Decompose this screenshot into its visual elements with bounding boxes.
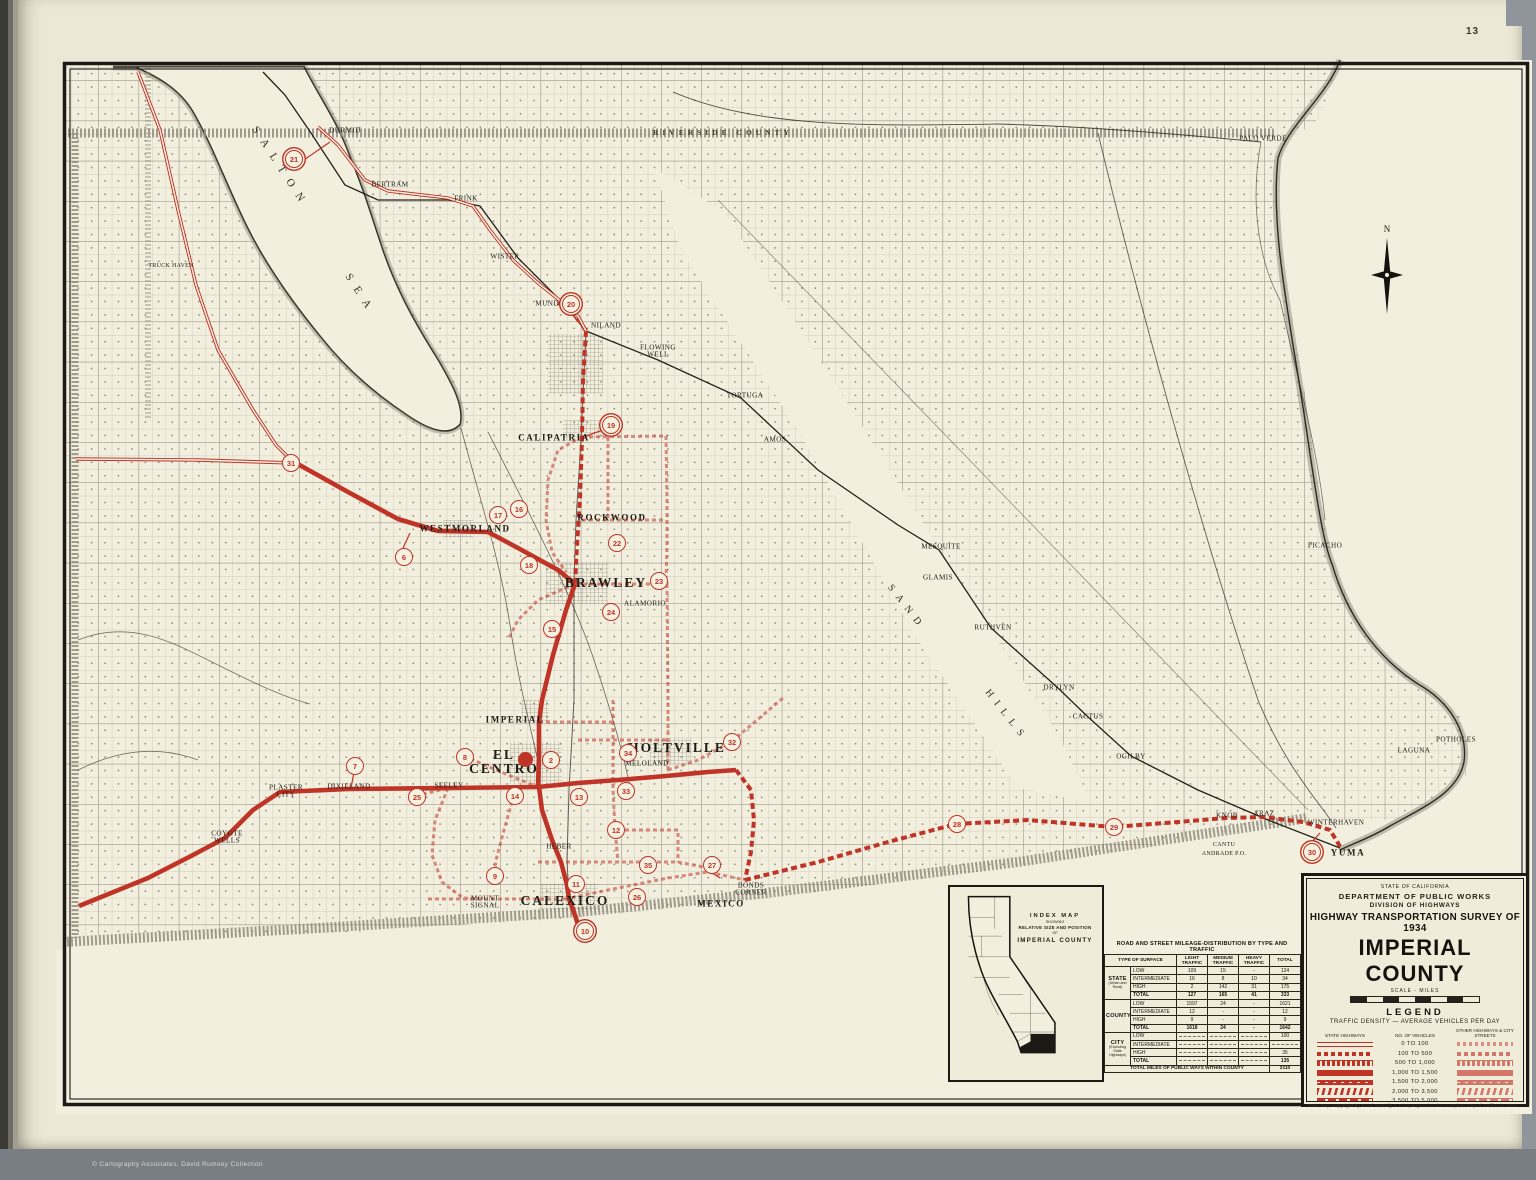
county-title: IMPERIAL COUNTY — [1307, 935, 1523, 987]
legend-subtitle: TRAFFIC DENSITY — AVERAGE VEHICLES PER D… — [1307, 1019, 1523, 1025]
station-marker: 23 — [650, 572, 668, 590]
index-map-caption: INDEX MAP SHOWING RELATIVE SIZE AND POSI… — [1011, 913, 1099, 944]
station-marker: 12 — [607, 821, 625, 839]
station-marker: 28 — [948, 815, 966, 833]
station-marker: 22 — [608, 534, 626, 552]
mileage-table-title: ROAD AND STREET MILEAGE-DISTRIBUTION BY … — [1104, 941, 1300, 953]
station-marker: 19 — [602, 416, 620, 434]
legend-row: 500 TO 1,000 — [1307, 1059, 1523, 1069]
book-scan: DURMIDBERTRAMFRINKWISTERMUNDONILANDFLOWI… — [0, 0, 1536, 1180]
station-marker: 7 — [346, 757, 364, 775]
division-line: DIVISION OF HIGHWAYS — [1307, 902, 1523, 909]
station-marker: 15 — [543, 620, 561, 638]
station-marker: 26 — [628, 888, 646, 906]
station-marker: 9 — [486, 867, 504, 885]
station-marker: 13 — [570, 788, 588, 806]
legend-row: 1,500 TO 2,000 — [1307, 1078, 1523, 1088]
scan-border: © Cartography Associates, David Rumsey C… — [0, 1149, 1536, 1180]
survey-title: HIGHWAY TRANSPORTATION SURVEY OF 1934 — [1307, 912, 1523, 934]
station-marker: 8 — [456, 748, 474, 766]
book-page: DURMIDBERTRAMFRINKWISTERMUNDONILANDFLOWI… — [18, 0, 1522, 1149]
station-marker: 14 — [506, 787, 524, 805]
title-block: STATE OF CALIFORNIA DEPARTMENT OF PUBLIC… — [1301, 873, 1529, 1107]
station-marker: 27 — [703, 856, 721, 874]
collection-credit: © Cartography Associates, David Rumsey C… — [92, 1161, 263, 1168]
station-marker: 31 — [282, 454, 300, 472]
station-marker: 21 — [285, 150, 303, 168]
page-number: 13 — [1466, 26, 1479, 37]
station-marker: 24 — [602, 603, 620, 621]
station-marker: 25 — [408, 788, 426, 806]
station-marker: 16 — [510, 500, 528, 518]
station-marker: 10 — [576, 922, 594, 940]
legend-rows: 0 TO 100100 TO 500500 TO 1,0001,000 TO 1… — [1307, 1040, 1523, 1103]
station-marker: 35 — [639, 856, 657, 874]
station-marker: 17 — [489, 506, 507, 524]
station-marker: 20 — [562, 295, 580, 313]
legend-row: 0 TO 100 — [1307, 1040, 1523, 1050]
department-line: DEPARTMENT OF PUBLIC WORKS — [1307, 892, 1523, 901]
station-marker: 34 — [619, 744, 637, 762]
census-city-dot — [518, 752, 533, 767]
legend-row: 1,000 TO 1,500 — [1307, 1068, 1523, 1078]
compass-north-label: N — [1384, 224, 1391, 234]
base-map-note: Base Map Copyright by Rand McNally & Com… — [1302, 1103, 1523, 1108]
legend-columns: STATE HIGHWAYS NO. OF VEHICLES OTHER HIG… — [1307, 1028, 1523, 1038]
compass-rose: N — [1370, 222, 1404, 323]
station-marker: 6 — [395, 548, 413, 566]
legend-row: 3,500 TO 5,000 — [1307, 1097, 1523, 1103]
mileage-table-grid: TYPE OF SURFACELIGHT TRAFFICMEDIUM TRAFF… — [1104, 954, 1301, 1073]
scale-bar — [1350, 996, 1480, 1003]
station-marker: 11 — [567, 875, 585, 893]
station-marker: 30 — [1303, 843, 1321, 861]
index-map: INDEX MAP SHOWING RELATIVE SIZE AND POSI… — [948, 885, 1104, 1082]
legend-row: 2,000 TO 3,500 — [1307, 1087, 1523, 1097]
station-marker: 18 — [520, 556, 538, 574]
scale-label: SCALE - MILES — [1307, 988, 1523, 994]
station-marker: 2 — [542, 751, 560, 769]
state-line: STATE OF CALIFORNIA — [1307, 884, 1523, 890]
legend-row: 100 TO 500 — [1307, 1049, 1523, 1059]
station-marker: 29 — [1105, 818, 1123, 836]
legend-title: LEGEND — [1307, 1007, 1523, 1018]
station-marker: 32 — [723, 733, 741, 751]
station-marker: 33 — [617, 782, 635, 800]
map: DURMIDBERTRAMFRINKWISTERMUNDONILANDFLOWI… — [18, 0, 1536, 1149]
mileage-table: ROAD AND STREET MILEAGE-DISTRIBUTION BY … — [1104, 941, 1300, 1073]
book-spine — [0, 0, 18, 1180]
